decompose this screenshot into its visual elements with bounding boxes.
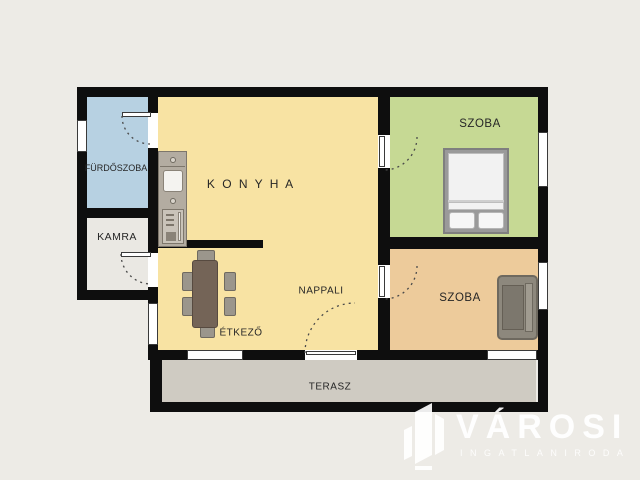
room-label-szoba-tan: SZOBA [439, 292, 480, 304]
room-label-szoba-green: SZOBA [459, 118, 500, 130]
counter-knob-icon [170, 198, 176, 204]
sofa-seat [502, 285, 524, 330]
watermark-tagline: INGATLANIRODA [460, 448, 640, 458]
window-living-left [148, 303, 158, 345]
room-label-terasz: TERASZ [309, 382, 351, 393]
room-label-kamra: KAMRA [97, 231, 137, 243]
sofa-backrest [525, 283, 533, 332]
floorplan-page: { "plan": { "type": "apartment-floorplan… [0, 0, 640, 480]
kitchen-stove [162, 209, 184, 244]
kitchen-sink [163, 170, 183, 192]
door-szoba-green-leaf [379, 136, 385, 167]
wall-green-tan [390, 237, 538, 249]
wall-top [77, 87, 548, 97]
door-bathroom [148, 113, 158, 148]
window-tan-right [538, 262, 548, 310]
stove-handle [178, 212, 181, 241]
sofa [497, 275, 538, 340]
room-label-nappali: NAPPALI [299, 286, 344, 297]
bed-pillow [478, 212, 504, 229]
door-szoba-tan-leaf [379, 266, 385, 297]
room-label-etkezo: ÉTKEZŐ [219, 328, 262, 339]
kitchen-counter [158, 151, 187, 247]
window-tan-bottom [487, 350, 537, 360]
wall-bath-kamra [87, 208, 148, 218]
building-logo-icon [402, 400, 452, 472]
bed-pillow [449, 212, 475, 229]
room-label-konyha: K O N Y H A [207, 177, 295, 191]
dining-table [192, 260, 218, 328]
window-etkezo-bottom [187, 350, 243, 360]
wall-kamra-bottom [77, 290, 158, 300]
counter-knob-icon [170, 157, 176, 163]
bed-duvet [448, 153, 504, 201]
door-kamra [148, 253, 158, 287]
dining-chair [224, 297, 236, 316]
watermark-brand: VÁROSI [456, 408, 640, 447]
door-kamra-leaf [121, 252, 151, 257]
window-green-right [538, 132, 548, 187]
bed-sheet [448, 202, 504, 210]
window-bathroom-left [77, 120, 87, 152]
room-label-furdoszoba: FÜRDŐSZOBA [85, 163, 148, 173]
dining-chair [224, 272, 236, 291]
door-terasz-leaf [306, 351, 356, 355]
counter-divider [160, 166, 185, 167]
door-bathroom-leaf [122, 112, 151, 117]
double-bed [443, 148, 509, 234]
